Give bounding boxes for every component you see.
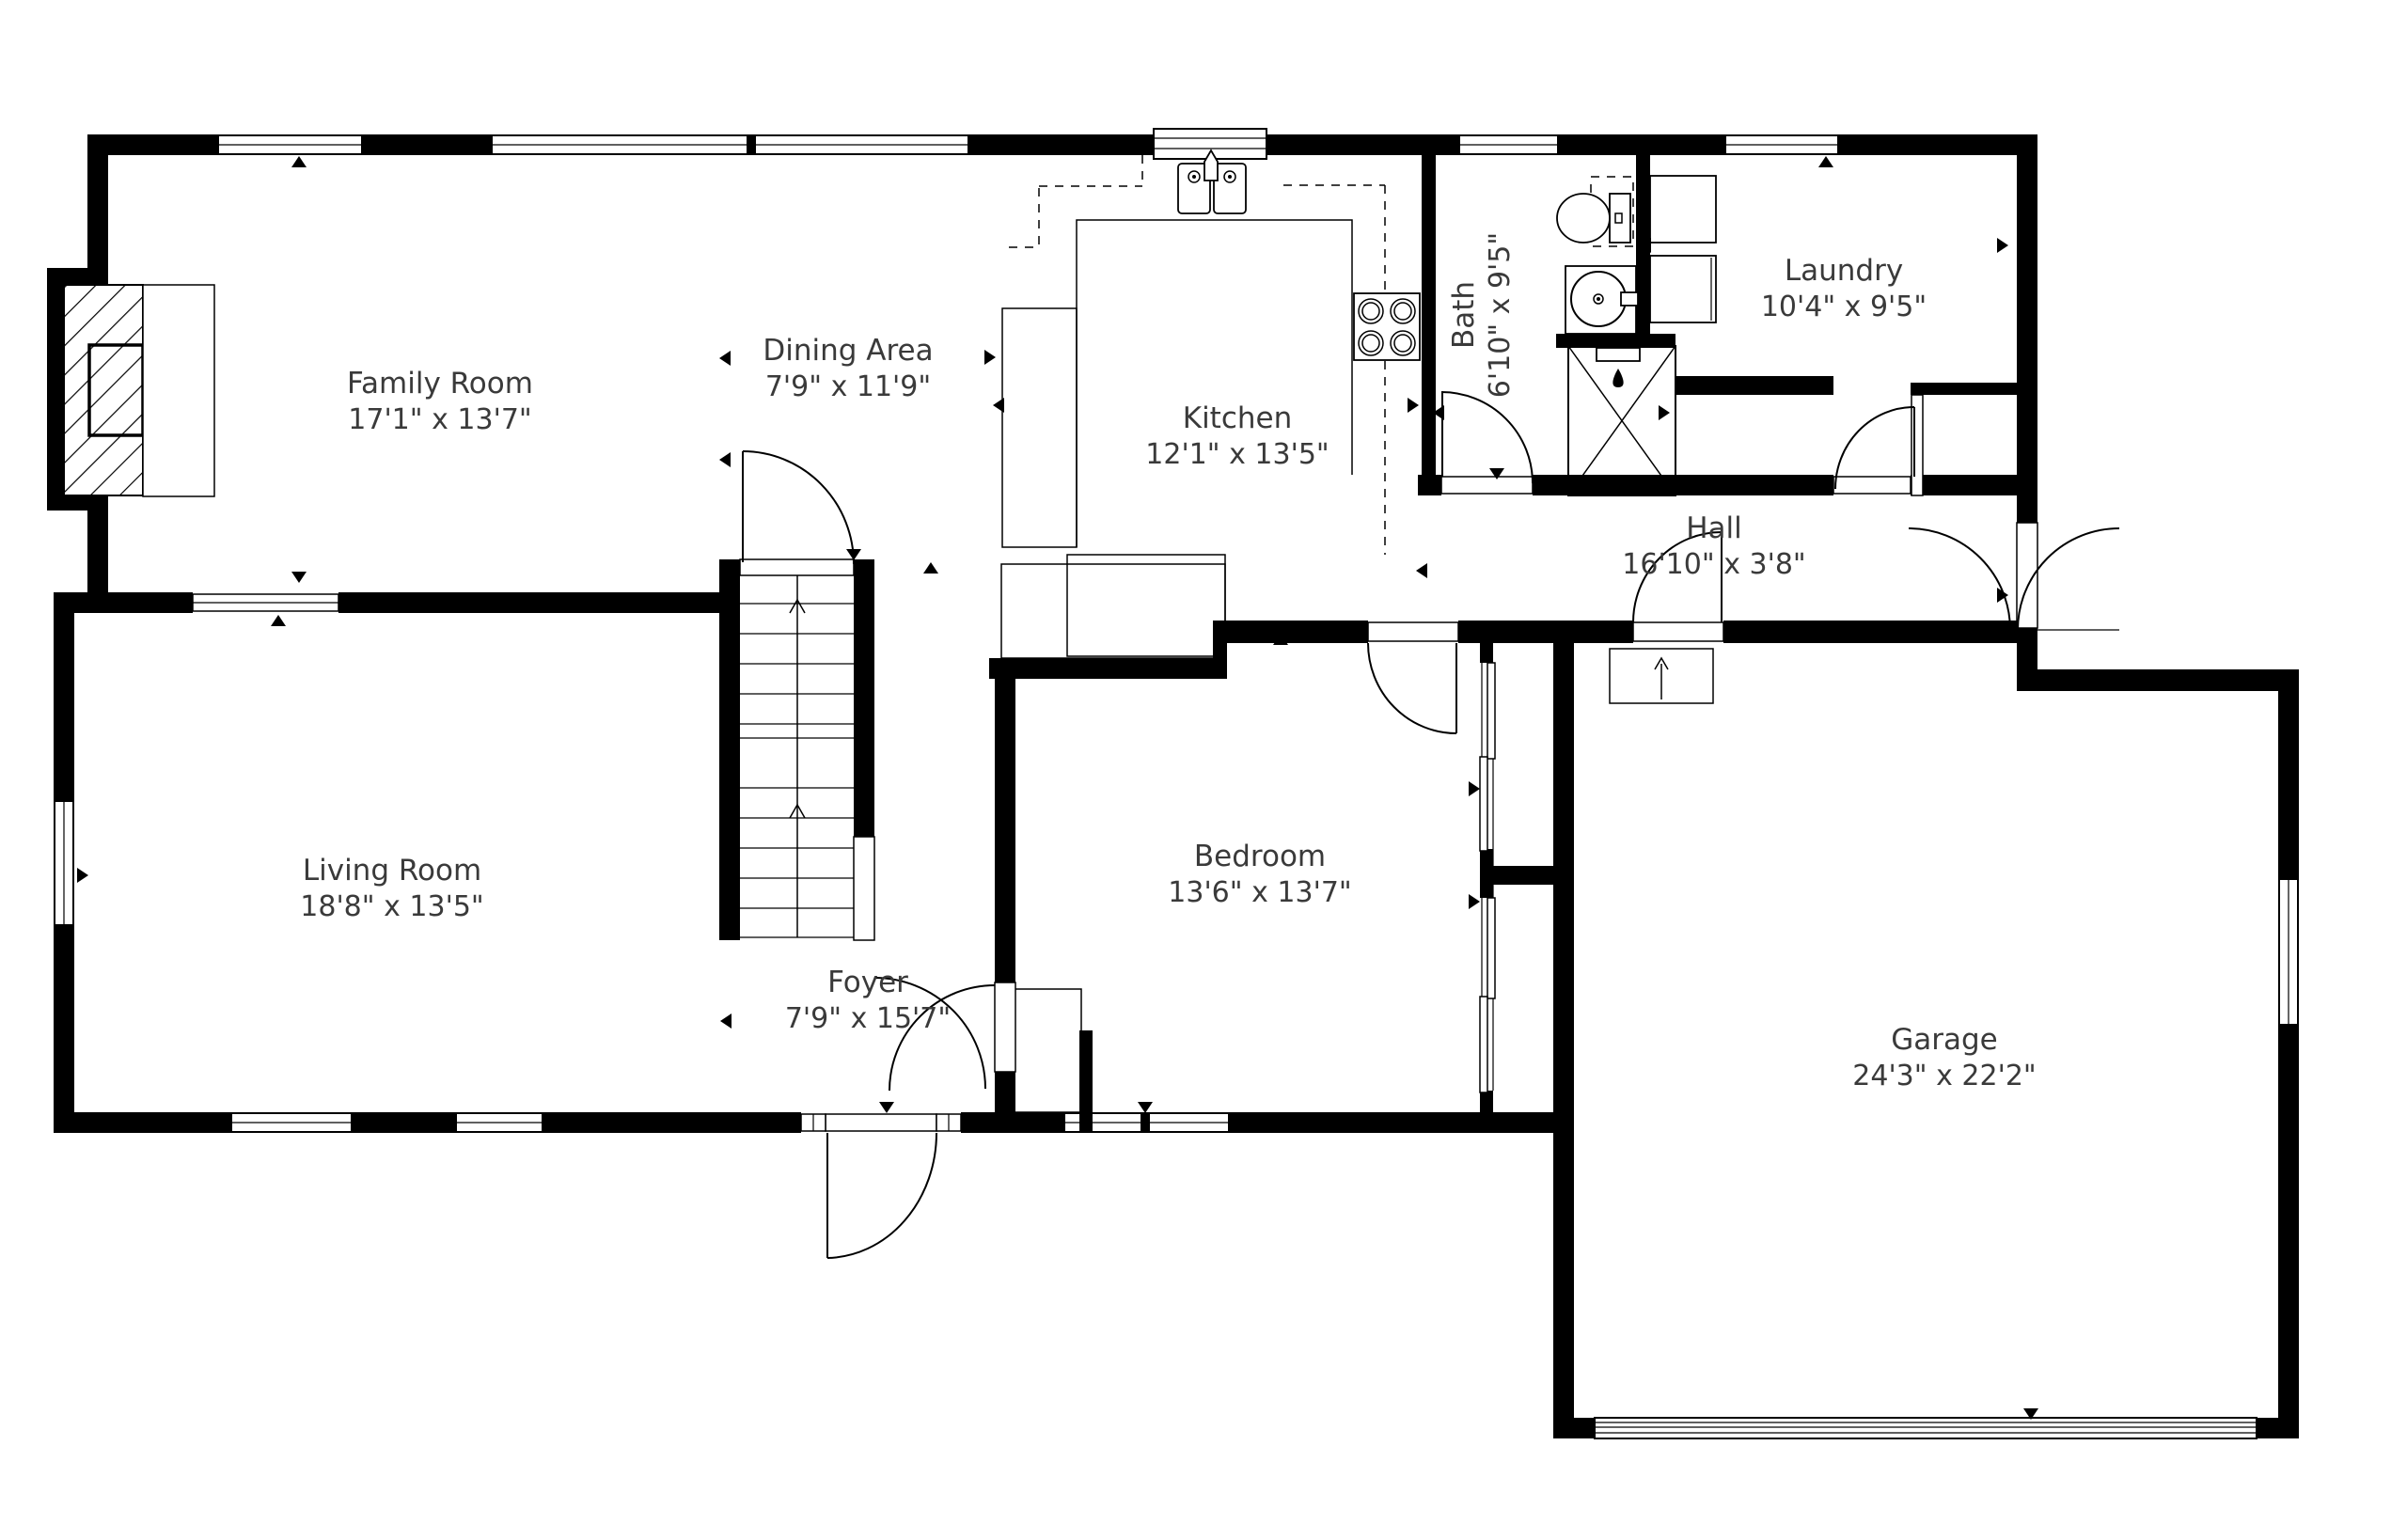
kitchen-peninsula bbox=[1002, 308, 1077, 547]
staircase bbox=[719, 559, 874, 940]
kitchen-fixtures bbox=[1002, 150, 1420, 555]
label-bedroom-dims: 13'6" x 13'7" bbox=[1168, 876, 1351, 909]
laundry-fixtures bbox=[1650, 176, 1923, 495]
cased-opening-family-living bbox=[193, 594, 338, 611]
door-stairs-top bbox=[743, 451, 854, 564]
window-bath-top bbox=[1459, 135, 1558, 154]
door-front-entry bbox=[801, 1114, 961, 1258]
window-dining-top-1 bbox=[492, 135, 747, 154]
fireplace bbox=[64, 285, 214, 496]
floor-plan-canvas: Family Room 17'1" x 13'7" Dining Area 7'… bbox=[0, 0, 2407, 1540]
label-living-room-dims: 18'8" x 13'5" bbox=[300, 890, 483, 923]
door-bedroom bbox=[1368, 622, 1458, 733]
window-living-bottom-2 bbox=[456, 1113, 543, 1132]
label-bedroom-name: Bedroom bbox=[1194, 840, 1326, 873]
hall-closet bbox=[1001, 555, 1225, 658]
foyer-closet bbox=[1010, 989, 1081, 1112]
floor-plan-drawing: Family Room 17'1" x 13'7" Dining Area 7'… bbox=[0, 0, 2407, 1540]
window-dining-top-2 bbox=[755, 135, 968, 154]
label-kitchen-name: Kitchen bbox=[1183, 401, 1293, 435]
label-living-room-name: Living Room bbox=[303, 854, 481, 888]
label-bath-dims: 6'10" x 9'5" bbox=[1484, 232, 1517, 398]
garage-overhead-door bbox=[1595, 1418, 2257, 1438]
exterior-walls bbox=[47, 134, 2299, 1438]
label-garage-name: Garage bbox=[1891, 1023, 1998, 1057]
label-dining-area-name: Dining Area bbox=[763, 334, 933, 368]
stair-direction-line bbox=[790, 575, 805, 937]
label-dining-area-dims: 7'9" x 11'9" bbox=[765, 370, 931, 403]
dryer bbox=[1650, 256, 1716, 322]
window-living-bottom-1 bbox=[231, 1113, 352, 1132]
kitchen-counter-edge bbox=[1077, 220, 1352, 547]
label-foyer-dims: 7'9" x 15'7" bbox=[785, 1002, 951, 1035]
shower-valve bbox=[1597, 348, 1640, 361]
toilet bbox=[1557, 177, 1633, 246]
stair-top-opening bbox=[740, 559, 854, 575]
label-hall-name: Hall bbox=[1686, 511, 1742, 545]
fireplace-inner-box bbox=[89, 345, 143, 435]
label-laundry-name: Laundry bbox=[1785, 254, 1903, 288]
kitchen-upper-cabinets-dashed bbox=[1009, 155, 1385, 555]
window-garage-right bbox=[2279, 879, 2298, 1025]
label-bath-name: Bath bbox=[1447, 281, 1481, 349]
laundry-closet bbox=[1911, 395, 1923, 495]
label-bath-group: Bath 6'10" x 9'5" bbox=[1447, 232, 1517, 398]
label-foyer-name: Foyer bbox=[827, 966, 908, 999]
doors bbox=[743, 392, 2257, 1438]
washer bbox=[1650, 176, 1716, 243]
bath-vanity-sink bbox=[1565, 266, 1638, 334]
kitchen-stove bbox=[1354, 293, 1420, 360]
window-living-left bbox=[55, 801, 73, 925]
label-family-room-dims: 17'1" x 13'7" bbox=[348, 403, 531, 436]
label-hall-dims: 16'10" x 3'8" bbox=[1622, 548, 1805, 581]
door-hall-exterior bbox=[1909, 523, 2119, 630]
shower bbox=[1568, 346, 1675, 495]
interior-walls bbox=[54, 155, 2022, 1133]
label-laundry-dims: 10'4" x 9'5" bbox=[1761, 291, 1927, 323]
label-kitchen-dims: 12'1" x 13'5" bbox=[1145, 438, 1329, 471]
window-laundry-top bbox=[1725, 135, 1838, 154]
shower-head-drop bbox=[1613, 369, 1623, 387]
door-laundry bbox=[1833, 407, 1914, 494]
fireplace-hearth bbox=[143, 285, 214, 496]
label-garage-dims: 24'3" x 22'2" bbox=[1852, 1060, 2036, 1092]
label-family-room-name: Family Room bbox=[347, 367, 533, 401]
direction-markers bbox=[77, 156, 2038, 1420]
door-bath bbox=[1441, 392, 1533, 494]
kitchen-sink bbox=[1178, 150, 1246, 213]
stair-door-frame bbox=[854, 837, 874, 940]
window-family-top bbox=[218, 135, 362, 154]
